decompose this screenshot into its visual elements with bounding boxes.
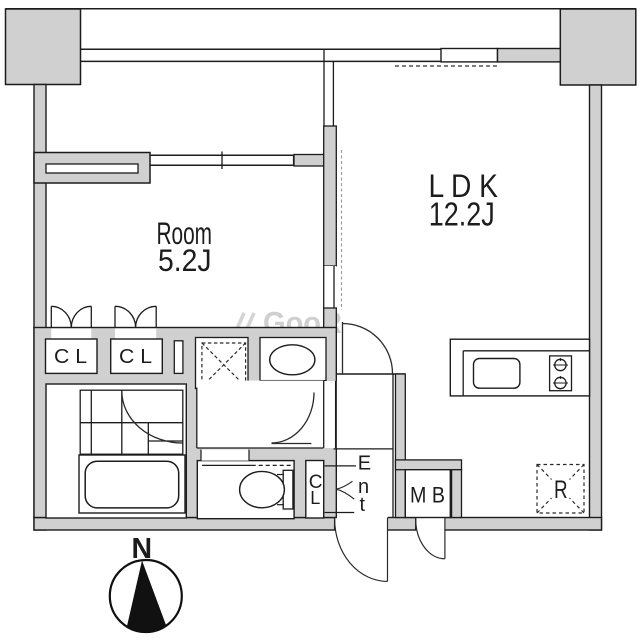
svg-text:L: L	[310, 488, 320, 508]
svg-text:M B: M B	[410, 482, 445, 507]
svg-text:E: E	[358, 453, 371, 475]
svg-text:12.2J: 12.2J	[429, 196, 495, 233]
svg-text:R: R	[554, 476, 568, 504]
svg-text:t: t	[360, 494, 366, 516]
svg-text:5.2J: 5.2J	[158, 242, 212, 278]
svg-text:C L: C L	[54, 346, 87, 368]
svg-text:C L: C L	[119, 346, 152, 368]
